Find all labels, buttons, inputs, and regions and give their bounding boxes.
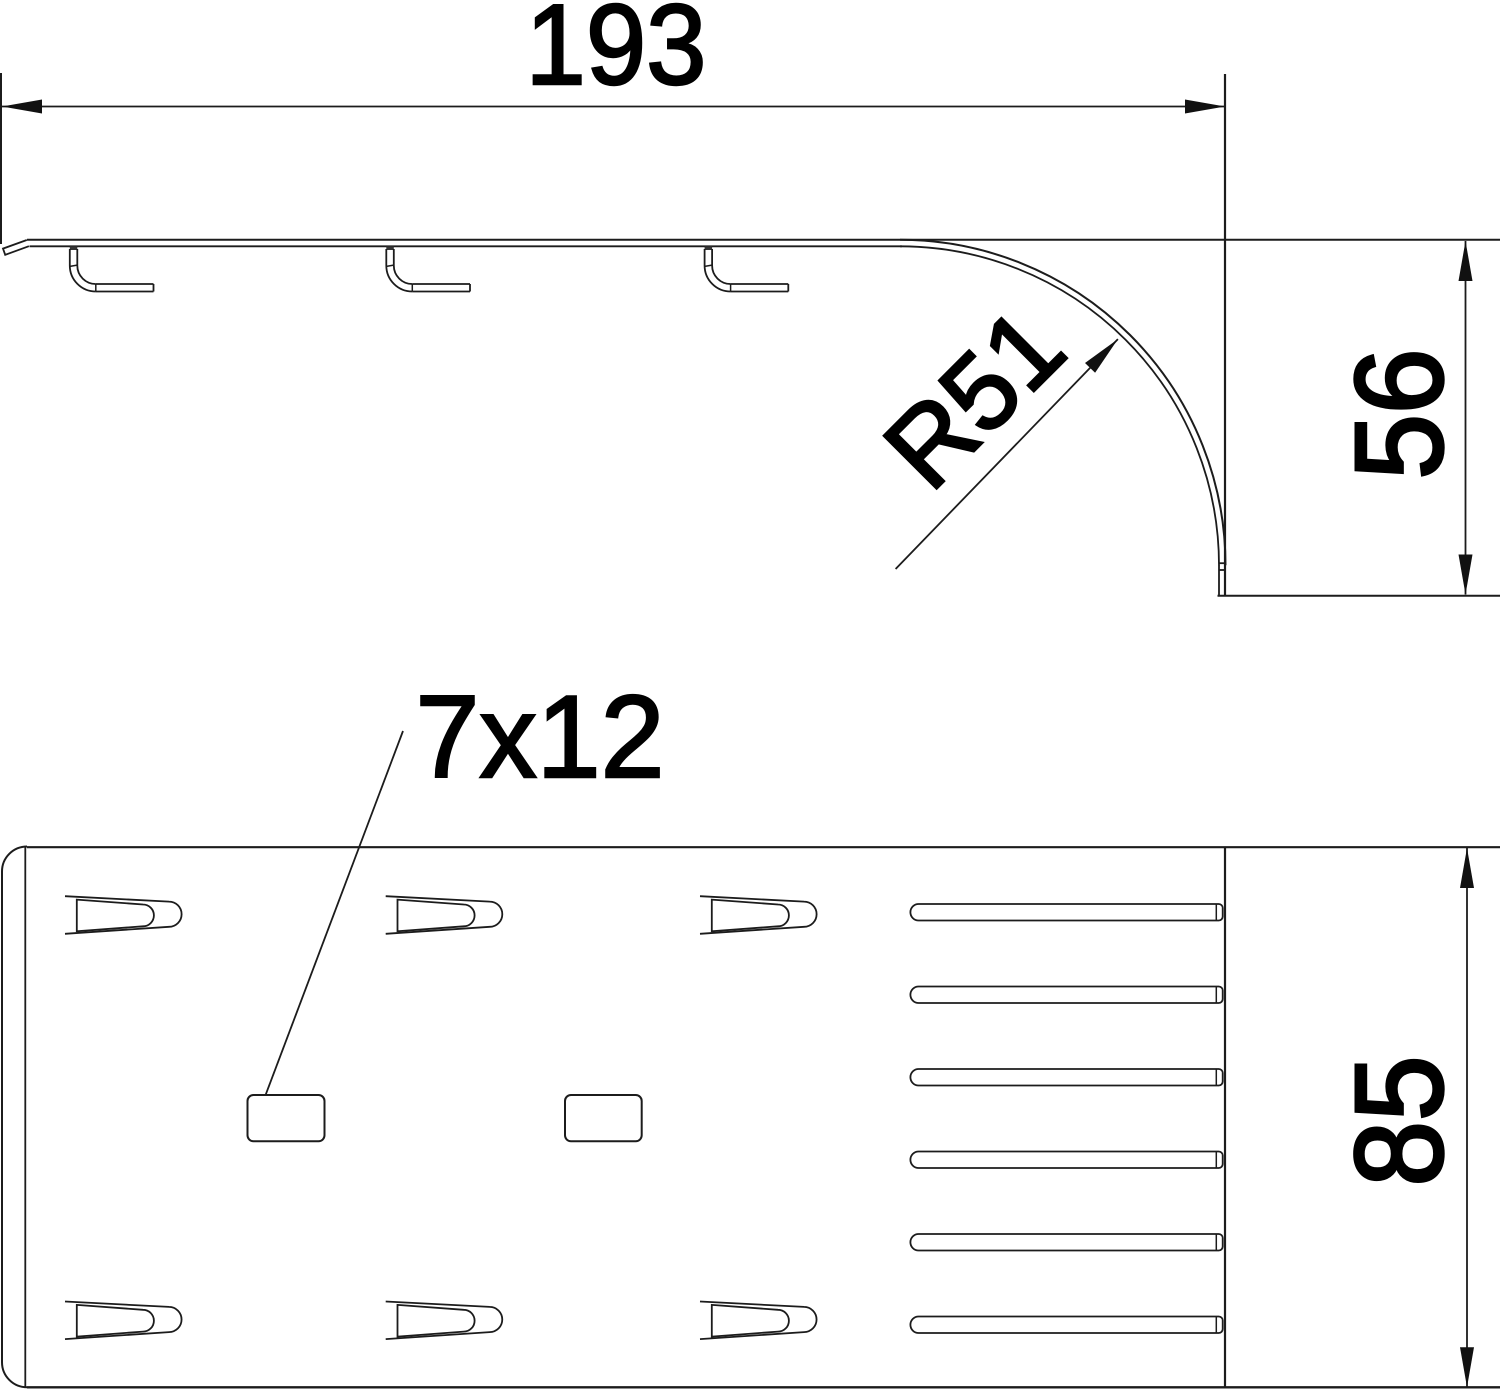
svg-text:7x12: 7x12 (416, 671, 665, 802)
svg-text:85: 85 (1331, 1056, 1469, 1187)
svg-text:193: 193 (526, 0, 707, 109)
svg-text:56: 56 (1331, 349, 1469, 480)
